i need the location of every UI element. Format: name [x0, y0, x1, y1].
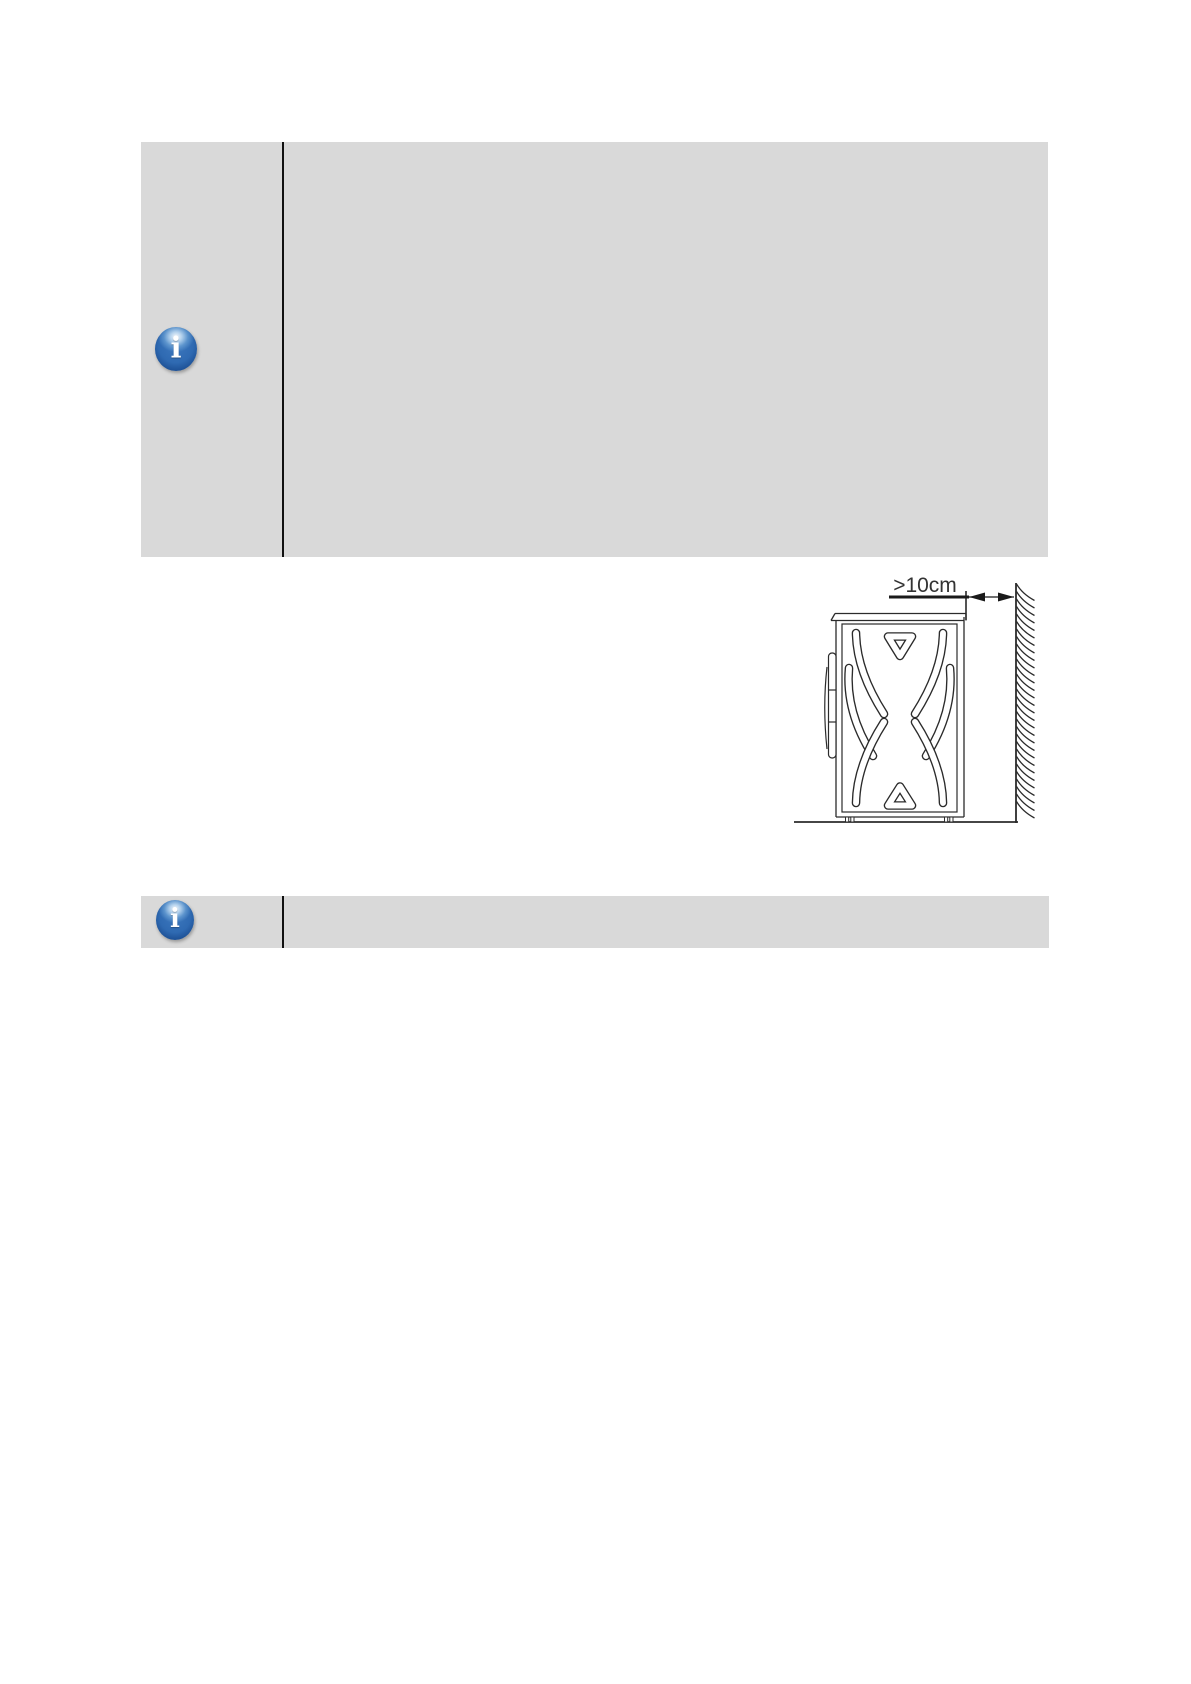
manual-page: i >10cm [0, 0, 1191, 1684]
note-divider-line [282, 142, 284, 557]
machine-door [825, 653, 836, 758]
info-icon-glyph: i [155, 331, 197, 365]
note-divider-line [282, 896, 284, 948]
arrowhead-left-icon [969, 593, 985, 602]
note-body-text [296, 904, 1039, 940]
info-icon-glyph: i [156, 904, 194, 934]
washing-machine-drawing [825, 614, 966, 823]
note-body-text [296, 150, 1038, 549]
info-icon: i [155, 327, 197, 371]
arrowhead-right-icon [998, 593, 1014, 602]
installation-clearance-figure: >10cm [778, 565, 1046, 833]
wall-hatch-pattern [1017, 584, 1035, 818]
clearance-label: >10cm [893, 574, 957, 597]
info-note-box-1: i [141, 142, 1048, 557]
wall-with-hatching [1016, 583, 1035, 823]
machine-top-lid [831, 614, 966, 621]
info-note-box-2: i [141, 896, 1049, 948]
info-icon: i [156, 900, 194, 940]
